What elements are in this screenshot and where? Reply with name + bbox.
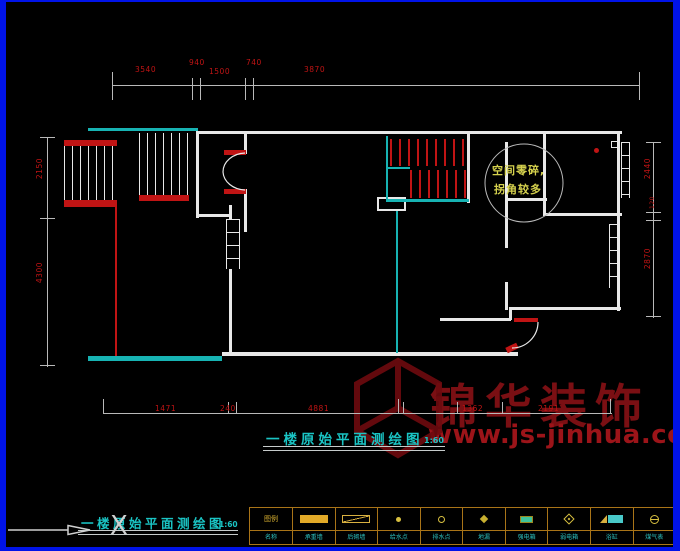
- gas-meter-icon: [650, 515, 659, 524]
- bathtub-icon: [600, 515, 623, 523]
- legend-header-top: 图例: [264, 516, 278, 523]
- frame-left: [0, 0, 6, 551]
- legend-item: 强电箱: [506, 508, 549, 544]
- annotation-line-2: 拐角较多: [494, 181, 542, 197]
- water-point-icon: [396, 517, 401, 522]
- legend-item: 承重墙: [293, 508, 336, 544]
- legend-label: 浴缸: [591, 531, 633, 544]
- entry-door-arc-top: [223, 153, 245, 172]
- annotation-line-1: 空间零碎,: [492, 162, 545, 178]
- power-box-icon: [520, 516, 533, 523]
- drawing-scale-secondary: 1:60: [219, 520, 238, 529]
- title-underline: [263, 450, 445, 451]
- frame-top: [0, 0, 680, 2]
- title-underline: [78, 530, 238, 531]
- legend-table: 图例 名称 承重墙 后砌墙 给水点 排水点 地漏 强电箱 弱电箱: [249, 507, 676, 545]
- legend-label: 弱电箱: [548, 531, 590, 544]
- drawing-title: 一楼原始平面测绘图: [266, 428, 424, 448]
- solid-wall-icon: [300, 515, 328, 523]
- legend-item: 后砌墙: [336, 508, 379, 544]
- legend-label: 煤气表: [634, 531, 676, 544]
- legend-label: 地漏: [463, 531, 505, 544]
- legend-item: 煤气表: [634, 508, 676, 544]
- arc-overlay: [0, 0, 680, 551]
- title-underline: [78, 534, 238, 535]
- frame-right: [673, 0, 680, 551]
- frame-bottom: [0, 547, 680, 551]
- legend-item: 浴缸: [591, 508, 634, 544]
- exit-door-arc: [512, 322, 538, 348]
- legend-label: 承重墙: [293, 531, 335, 544]
- legend-item: 地漏: [463, 508, 506, 544]
- ucs-x-label: X: [110, 511, 128, 541]
- partition-wall-icon: [342, 515, 370, 523]
- legend-label: 后砌墙: [336, 531, 378, 544]
- legend-item: 排水点: [421, 508, 464, 544]
- entry-door-arc-bottom: [223, 172, 245, 190]
- legend-header-column: 图例 名称: [250, 508, 293, 544]
- drain-point-icon: [438, 516, 445, 523]
- legend-item: 弱电箱: [548, 508, 591, 544]
- floor-drain-icon: [480, 515, 488, 523]
- cad-floorplan-view: 锦华装饰 www.js-jinhua.com 3540 940 1500 740…: [0, 0, 680, 551]
- legend-label: 强电箱: [506, 531, 548, 544]
- legend-item: 给水点: [378, 508, 421, 544]
- legend-header-bottom: 名称: [250, 531, 292, 544]
- weak-box-icon: [563, 513, 574, 524]
- legend-label: 排水点: [421, 531, 463, 544]
- drawing-scale: 1:60: [424, 436, 444, 445]
- title-underline: [263, 446, 445, 447]
- legend-label: 给水点: [378, 531, 420, 544]
